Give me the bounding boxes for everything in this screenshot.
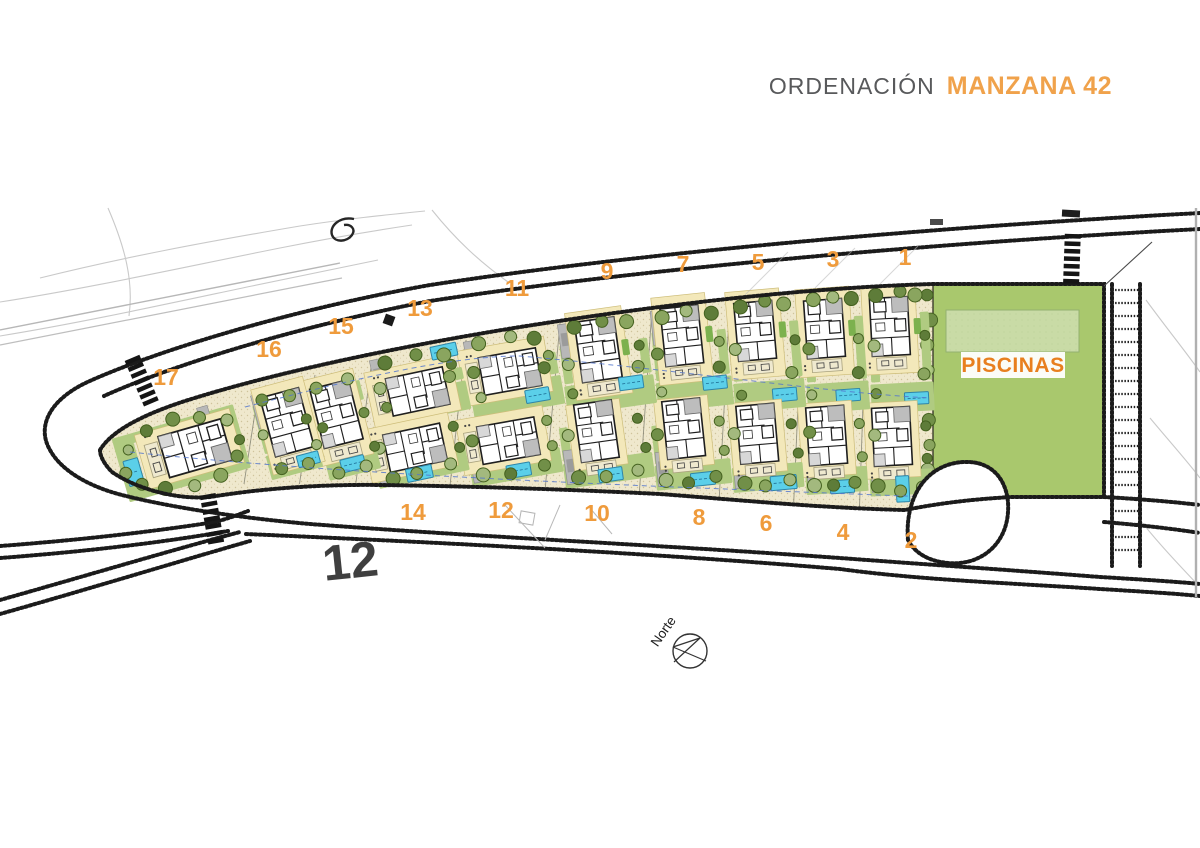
- lawn: [848, 320, 856, 336]
- tree: [803, 342, 816, 355]
- tree: [920, 421, 931, 432]
- pool-plot-9: [618, 375, 644, 391]
- tree: [844, 291, 859, 306]
- site-plan-page: ORDENACIÓN MANZANA 42 121234567891011121…: [0, 0, 1200, 848]
- tree: [922, 453, 933, 464]
- tree: [908, 288, 923, 303]
- tree: [868, 429, 881, 442]
- tree: [719, 445, 730, 456]
- tree: [826, 291, 839, 304]
- tree: [806, 292, 821, 307]
- tree: [786, 418, 797, 429]
- manhole-mark: [383, 314, 396, 327]
- tree: [736, 390, 747, 401]
- tree: [868, 340, 881, 353]
- underlay-parcel-number: 12: [320, 530, 381, 592]
- plot-number-14: 14: [400, 499, 426, 525]
- plot-number-12: 12: [488, 497, 514, 523]
- piscinas-label: PISCINAS: [961, 354, 1064, 377]
- tree: [857, 451, 868, 462]
- plot-number-8: 8: [693, 504, 706, 530]
- pool-plot-3: [836, 388, 861, 402]
- lawn: [913, 318, 921, 334]
- plot-number-5: 5: [752, 249, 765, 275]
- site-plan-drawing: 121234567891011121314151617PISCINASNorte: [0, 0, 1200, 848]
- tree: [849, 476, 862, 489]
- plot-number-15: 15: [328, 313, 354, 339]
- crosswalk: [1063, 234, 1081, 284]
- tree: [918, 368, 931, 381]
- plot-number-10: 10: [584, 500, 610, 526]
- tree: [920, 330, 931, 341]
- north-arrow-icon: [673, 638, 706, 662]
- tree: [807, 478, 822, 493]
- tree: [656, 386, 667, 397]
- tree: [785, 366, 798, 379]
- plot-number-16: 16: [256, 336, 282, 362]
- plot-number-2: 2: [905, 527, 918, 553]
- tree: [806, 390, 817, 401]
- tree: [793, 448, 804, 459]
- tree: [854, 418, 865, 429]
- tree: [871, 479, 886, 494]
- tree: [852, 366, 865, 379]
- tree: [868, 288, 883, 303]
- plot-number-11: 11: [505, 275, 530, 301]
- plot-number-17: 17: [153, 364, 179, 390]
- tree: [714, 416, 725, 427]
- plot-number-4: 4: [837, 519, 850, 545]
- tree: [853, 333, 864, 344]
- pool-plot-7: [702, 375, 727, 390]
- lawn: [778, 321, 786, 338]
- tree: [714, 336, 725, 347]
- north-compass: Norte: [648, 614, 707, 668]
- tree: [783, 473, 796, 486]
- plot-number-13: 13: [407, 295, 433, 321]
- plot-number-6: 6: [760, 510, 773, 536]
- tree: [803, 426, 816, 439]
- tree: [827, 479, 840, 492]
- plot-number-1: 1: [899, 244, 912, 270]
- tree: [729, 343, 742, 356]
- plot-number-3: 3: [827, 246, 840, 272]
- tree: [790, 334, 801, 345]
- plot-number-9: 9: [601, 258, 614, 284]
- tree: [728, 427, 741, 440]
- plot-number-7: 7: [677, 251, 690, 277]
